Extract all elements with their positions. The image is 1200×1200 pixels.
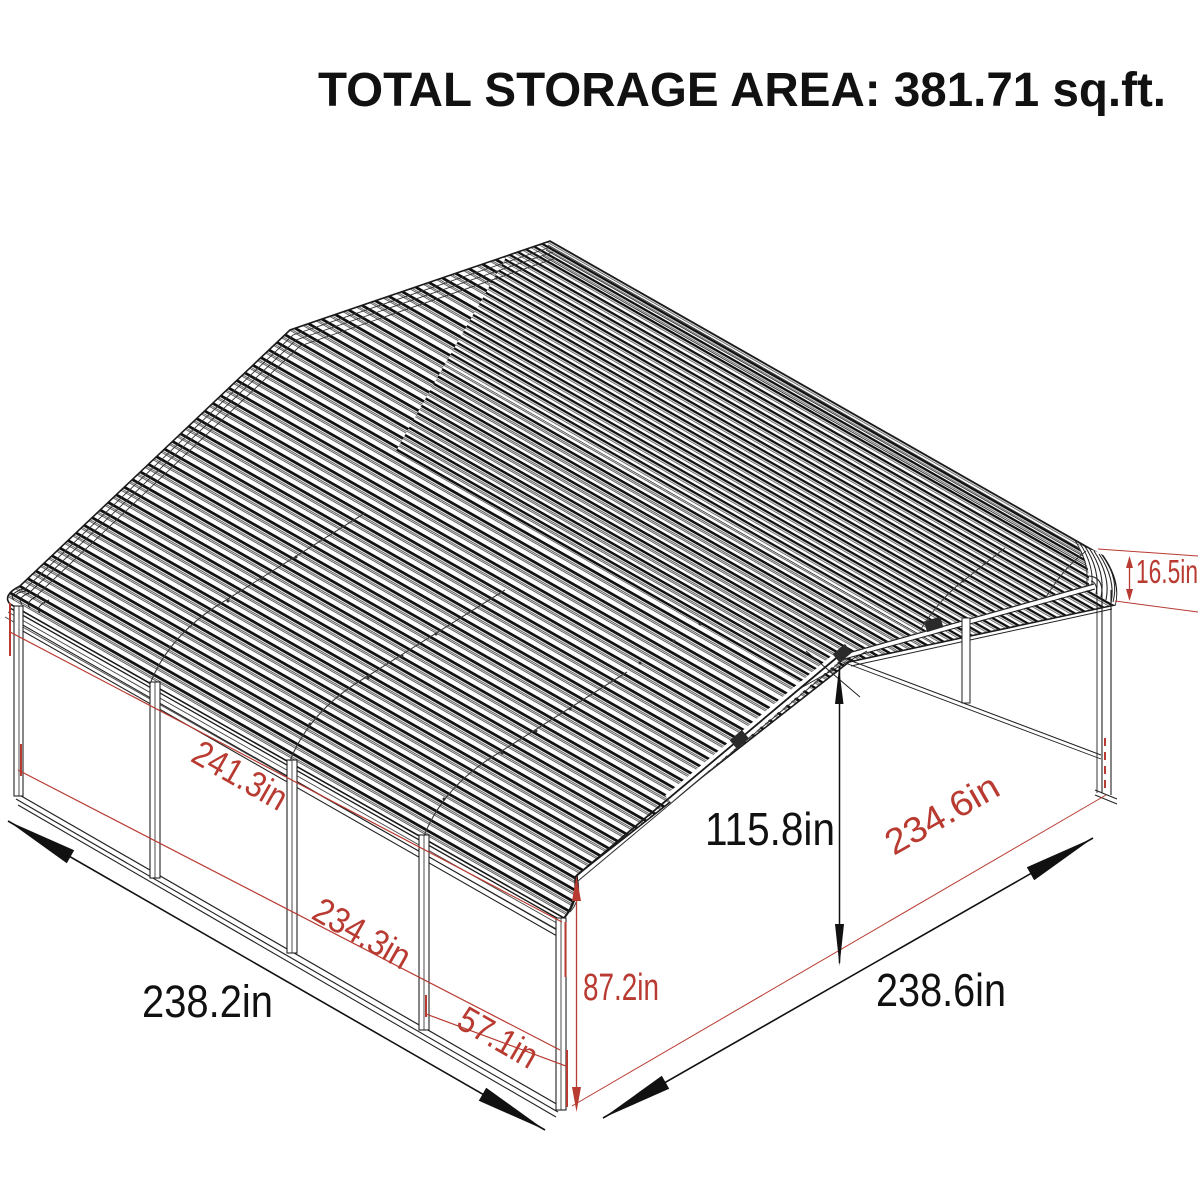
svg-text:238.2in: 238.2in [142,976,273,1027]
svg-text:238.6in: 238.6in [876,964,1006,1016]
svg-text:234.6in: 234.6in [877,765,1006,863]
svg-text:87.2in: 87.2in [583,967,659,1009]
svg-text:TOTAL STORAGE AREA: 381.71 sq.: TOTAL STORAGE AREA: 381.71 sq.ft. [318,64,1166,117]
svg-text:16.5in: 16.5in [1136,553,1198,590]
svg-text:234.3in: 234.3in [306,889,418,977]
svg-text:115.8in: 115.8in [705,803,835,855]
